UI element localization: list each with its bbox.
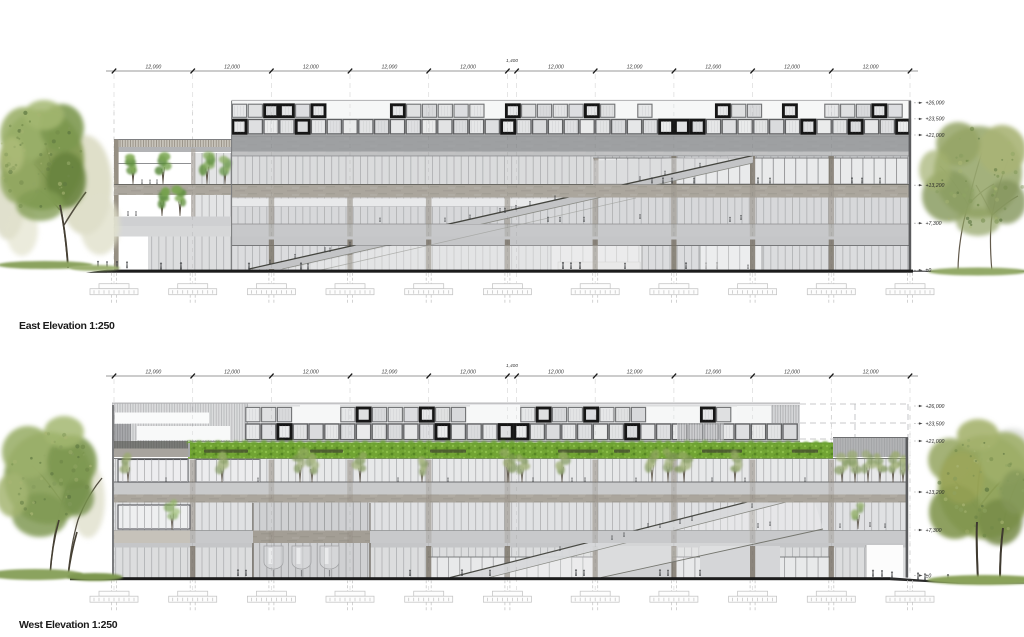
svg-text:+7,300: +7,300 <box>926 221 942 227</box>
svg-text:1,400: 1,400 <box>506 58 518 64</box>
svg-text:12,000: 12,000 <box>548 370 564 376</box>
svg-text:12,000: 12,000 <box>863 370 879 376</box>
svg-text:12,000: 12,000 <box>303 370 319 376</box>
svg-text:+7,300: +7,300 <box>926 528 942 534</box>
svg-text:12,000: 12,000 <box>145 65 161 71</box>
svg-text:+13,200: +13,200 <box>926 183 945 189</box>
svg-text:±0: ±0 <box>926 268 932 274</box>
svg-text:12,000: 12,000 <box>784 370 800 376</box>
svg-text:+23,500: +23,500 <box>926 117 945 123</box>
svg-text:1,400: 1,400 <box>506 363 518 369</box>
svg-text:12,000: 12,000 <box>548 65 564 71</box>
svg-text:12,000: 12,000 <box>460 65 476 71</box>
svg-text:+13,200: +13,200 <box>926 490 945 496</box>
svg-text:12,000: 12,000 <box>224 370 240 376</box>
svg-text:+26,000: +26,000 <box>926 404 945 410</box>
svg-text:12,000: 12,000 <box>627 370 643 376</box>
svg-text:+23,500: +23,500 <box>926 421 945 427</box>
svg-text:12,000: 12,000 <box>381 370 397 376</box>
svg-text:+26,000: +26,000 <box>926 101 945 107</box>
svg-text:+21,000: +21,000 <box>926 439 945 445</box>
svg-text:12,000: 12,000 <box>627 65 643 71</box>
svg-text:West Elevation 1:250: West Elevation 1:250 <box>19 619 118 631</box>
svg-text:±0: ±0 <box>926 573 932 579</box>
svg-text:12,000: 12,000 <box>460 370 476 376</box>
svg-text:12,000: 12,000 <box>381 65 397 71</box>
svg-text:12,000: 12,000 <box>303 65 319 71</box>
svg-text:12,000: 12,000 <box>863 65 879 71</box>
svg-text:12,000: 12,000 <box>145 370 161 376</box>
svg-text:12,000: 12,000 <box>705 65 721 71</box>
svg-text:+21,000: +21,000 <box>926 133 945 139</box>
svg-text:12,000: 12,000 <box>784 65 800 71</box>
svg-text:12,000: 12,000 <box>224 65 240 71</box>
svg-text:12,000: 12,000 <box>705 370 721 376</box>
svg-text:East Elevation 1:250: East Elevation 1:250 <box>19 320 115 332</box>
